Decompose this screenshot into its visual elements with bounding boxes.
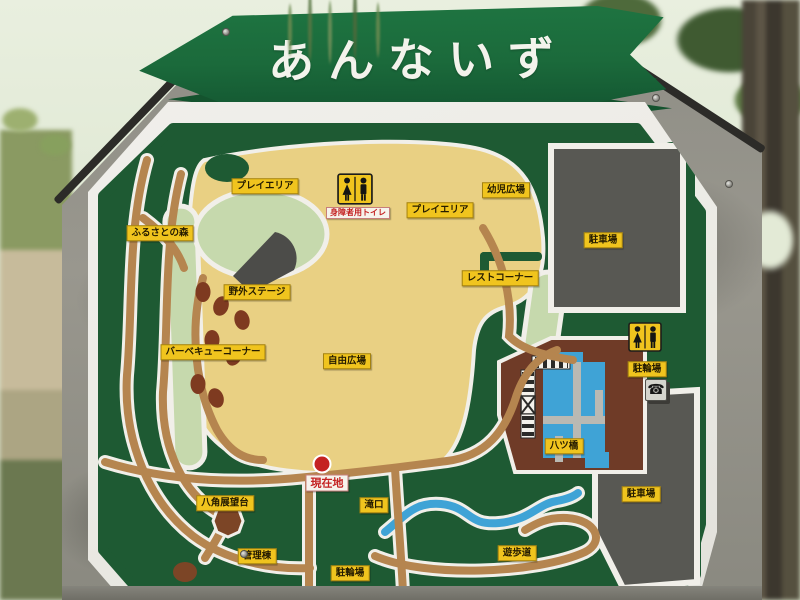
public-phone-icon: ☎ xyxy=(645,379,667,401)
label-bbq-corner: バーベキューコーナー xyxy=(160,344,265,360)
label-parking-north: 駐車場 xyxy=(584,232,623,248)
screw xyxy=(652,94,660,102)
label-rest-corner: レストコーナー xyxy=(462,270,539,286)
screw xyxy=(725,180,733,188)
label-kids-plaza: 幼児広場 xyxy=(482,182,530,198)
label-promenade: 遊歩道 xyxy=(498,545,537,561)
small-mound xyxy=(173,562,197,582)
label-bicycle-parking-south: 駐輪場 xyxy=(331,565,370,581)
label-accessible-toilet: 身障者用トイレ xyxy=(326,207,390,219)
parking-lot-north xyxy=(551,146,683,310)
sign-bottom-frame xyxy=(62,586,762,600)
label-takiguchi: 滝口 xyxy=(359,497,388,513)
label-parking-south: 駐車場 xyxy=(622,486,661,502)
label-play-area-1: プレイエリア xyxy=(232,178,299,194)
label-yatsuhashi: 八ツ橋 xyxy=(545,438,584,454)
restroom-icon xyxy=(628,322,662,356)
phone-glyph: ☎ xyxy=(647,383,664,397)
label-current-location: 現在地 xyxy=(306,475,349,492)
label-free-plaza: 自由広場 xyxy=(323,353,371,369)
grass-left xyxy=(0,90,80,170)
screw xyxy=(240,550,248,558)
park-sign-photo: あんないず xyxy=(0,0,800,600)
label-outdoor-stage: 野外ステージ xyxy=(224,284,291,300)
label-octagon-deck: 八角展望台 xyxy=(196,495,254,511)
label-bicycle-parking-right: 駐輪場 xyxy=(628,361,667,377)
label-play-area-2: プレイエリア xyxy=(407,202,474,218)
label-furusato-forest: ふるさとの森 xyxy=(127,225,194,241)
accessible-restroom-icon xyxy=(337,173,373,209)
current-location-dot xyxy=(314,456,331,473)
screw xyxy=(222,28,230,36)
map-panel: ☎ プレイエリア 身障者用トイレ プレイエリア 幼児広場 ふるさとの森 野外ステ… xyxy=(85,100,717,598)
sign-title: あんないず xyxy=(238,22,569,91)
